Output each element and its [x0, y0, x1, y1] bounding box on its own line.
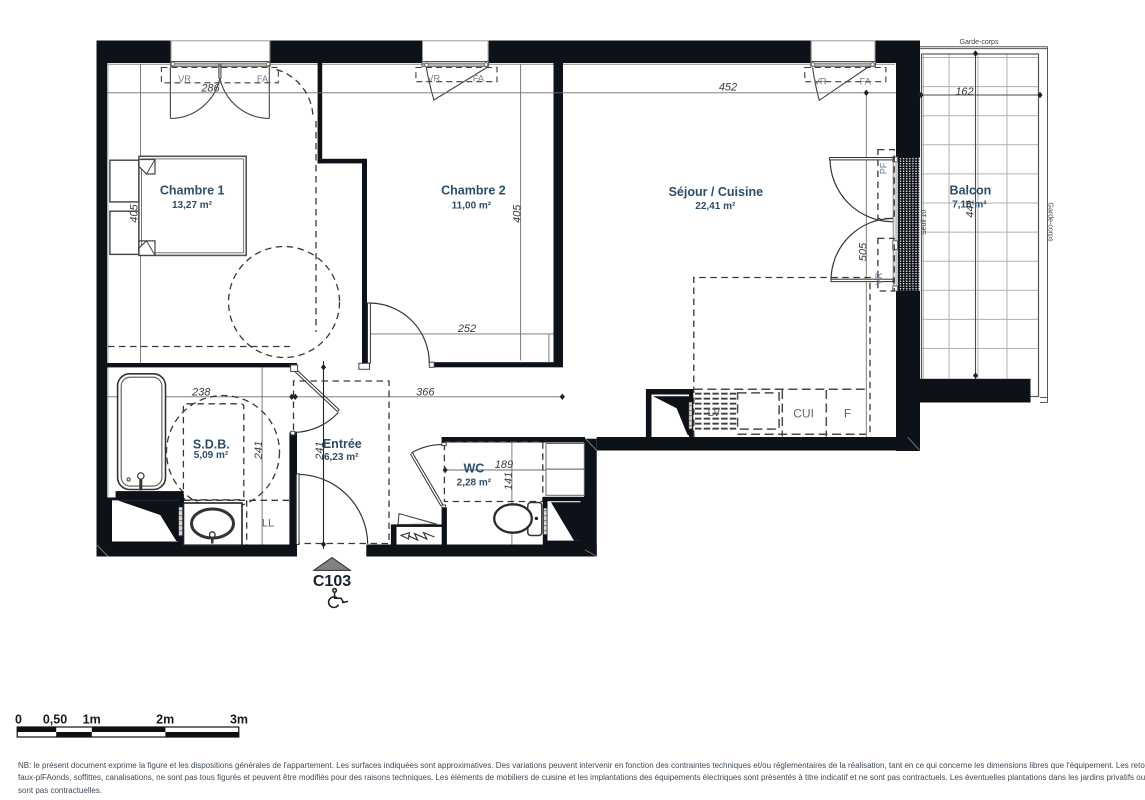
svg-text:Garde-corps: Garde-corps — [1047, 203, 1054, 242]
svg-text:C103: C103 — [313, 573, 351, 590]
svg-text:0: 0 — [15, 713, 22, 727]
svg-text:441: 441 — [965, 199, 977, 217]
svg-text:405: 405 — [128, 203, 140, 222]
svg-text:Séjour / Cuisine: Séjour / Cuisine — [669, 185, 764, 199]
svg-text:FA: FA — [257, 74, 269, 84]
svg-text:241: 241 — [253, 441, 265, 460]
svg-text:Balcon: Balcon — [950, 184, 992, 198]
svg-text:238: 238 — [191, 386, 211, 398]
svg-text:Garde-corps: Garde-corps — [960, 39, 999, 46]
svg-text:3m: 3m — [230, 713, 248, 727]
svg-text:405: 405 — [511, 204, 523, 223]
svg-text:Chambre 1: Chambre 1 — [160, 184, 225, 198]
svg-text:13,27 m²: 13,27 m² — [172, 200, 213, 211]
svg-text:252: 252 — [457, 323, 476, 335]
svg-text:366: 366 — [416, 386, 435, 398]
svg-text:VR: VR — [874, 272, 884, 285]
svg-text:VR: VR — [814, 77, 827, 87]
svg-text:LV: LV — [707, 407, 721, 419]
svg-text:286: 286 — [200, 83, 220, 95]
svg-text:F: F — [844, 407, 851, 421]
svg-text:1m: 1m — [83, 713, 101, 727]
svg-text:FA: FA — [473, 74, 485, 84]
svg-text:Seuil 10: Seuil 10 — [921, 210, 928, 235]
svg-text:2m: 2m — [156, 713, 174, 727]
svg-text:2,28 m²: 2,28 m² — [457, 478, 492, 489]
svg-text:LL: LL — [262, 518, 274, 530]
svg-text:141: 141 — [503, 472, 515, 490]
svg-text:VR: VR — [427, 74, 440, 84]
svg-text:241: 241 — [314, 441, 326, 460]
svg-text:WC: WC — [463, 462, 484, 476]
svg-text:Chambre 2: Chambre 2 — [441, 184, 506, 198]
svg-text:0,50: 0,50 — [43, 713, 67, 727]
svg-text:Entrée: Entrée — [323, 437, 362, 451]
svg-text:505: 505 — [858, 242, 870, 261]
svg-text:162: 162 — [955, 86, 973, 98]
svg-text:PF: PF — [879, 162, 889, 174]
svg-text:FA: FA — [860, 77, 872, 87]
svg-text:189: 189 — [495, 459, 513, 471]
svg-text:22,41 m²: 22,41 m² — [695, 201, 736, 212]
svg-text:CUI: CUI — [793, 407, 814, 421]
svg-text:11,00 m²: 11,00 m² — [452, 200, 492, 211]
svg-text:452: 452 — [719, 82, 737, 94]
svg-text:5,09 m²: 5,09 m² — [194, 450, 229, 461]
svg-text:6,23 m²: 6,23 m² — [324, 452, 359, 463]
svg-text:VR: VR — [178, 74, 191, 84]
